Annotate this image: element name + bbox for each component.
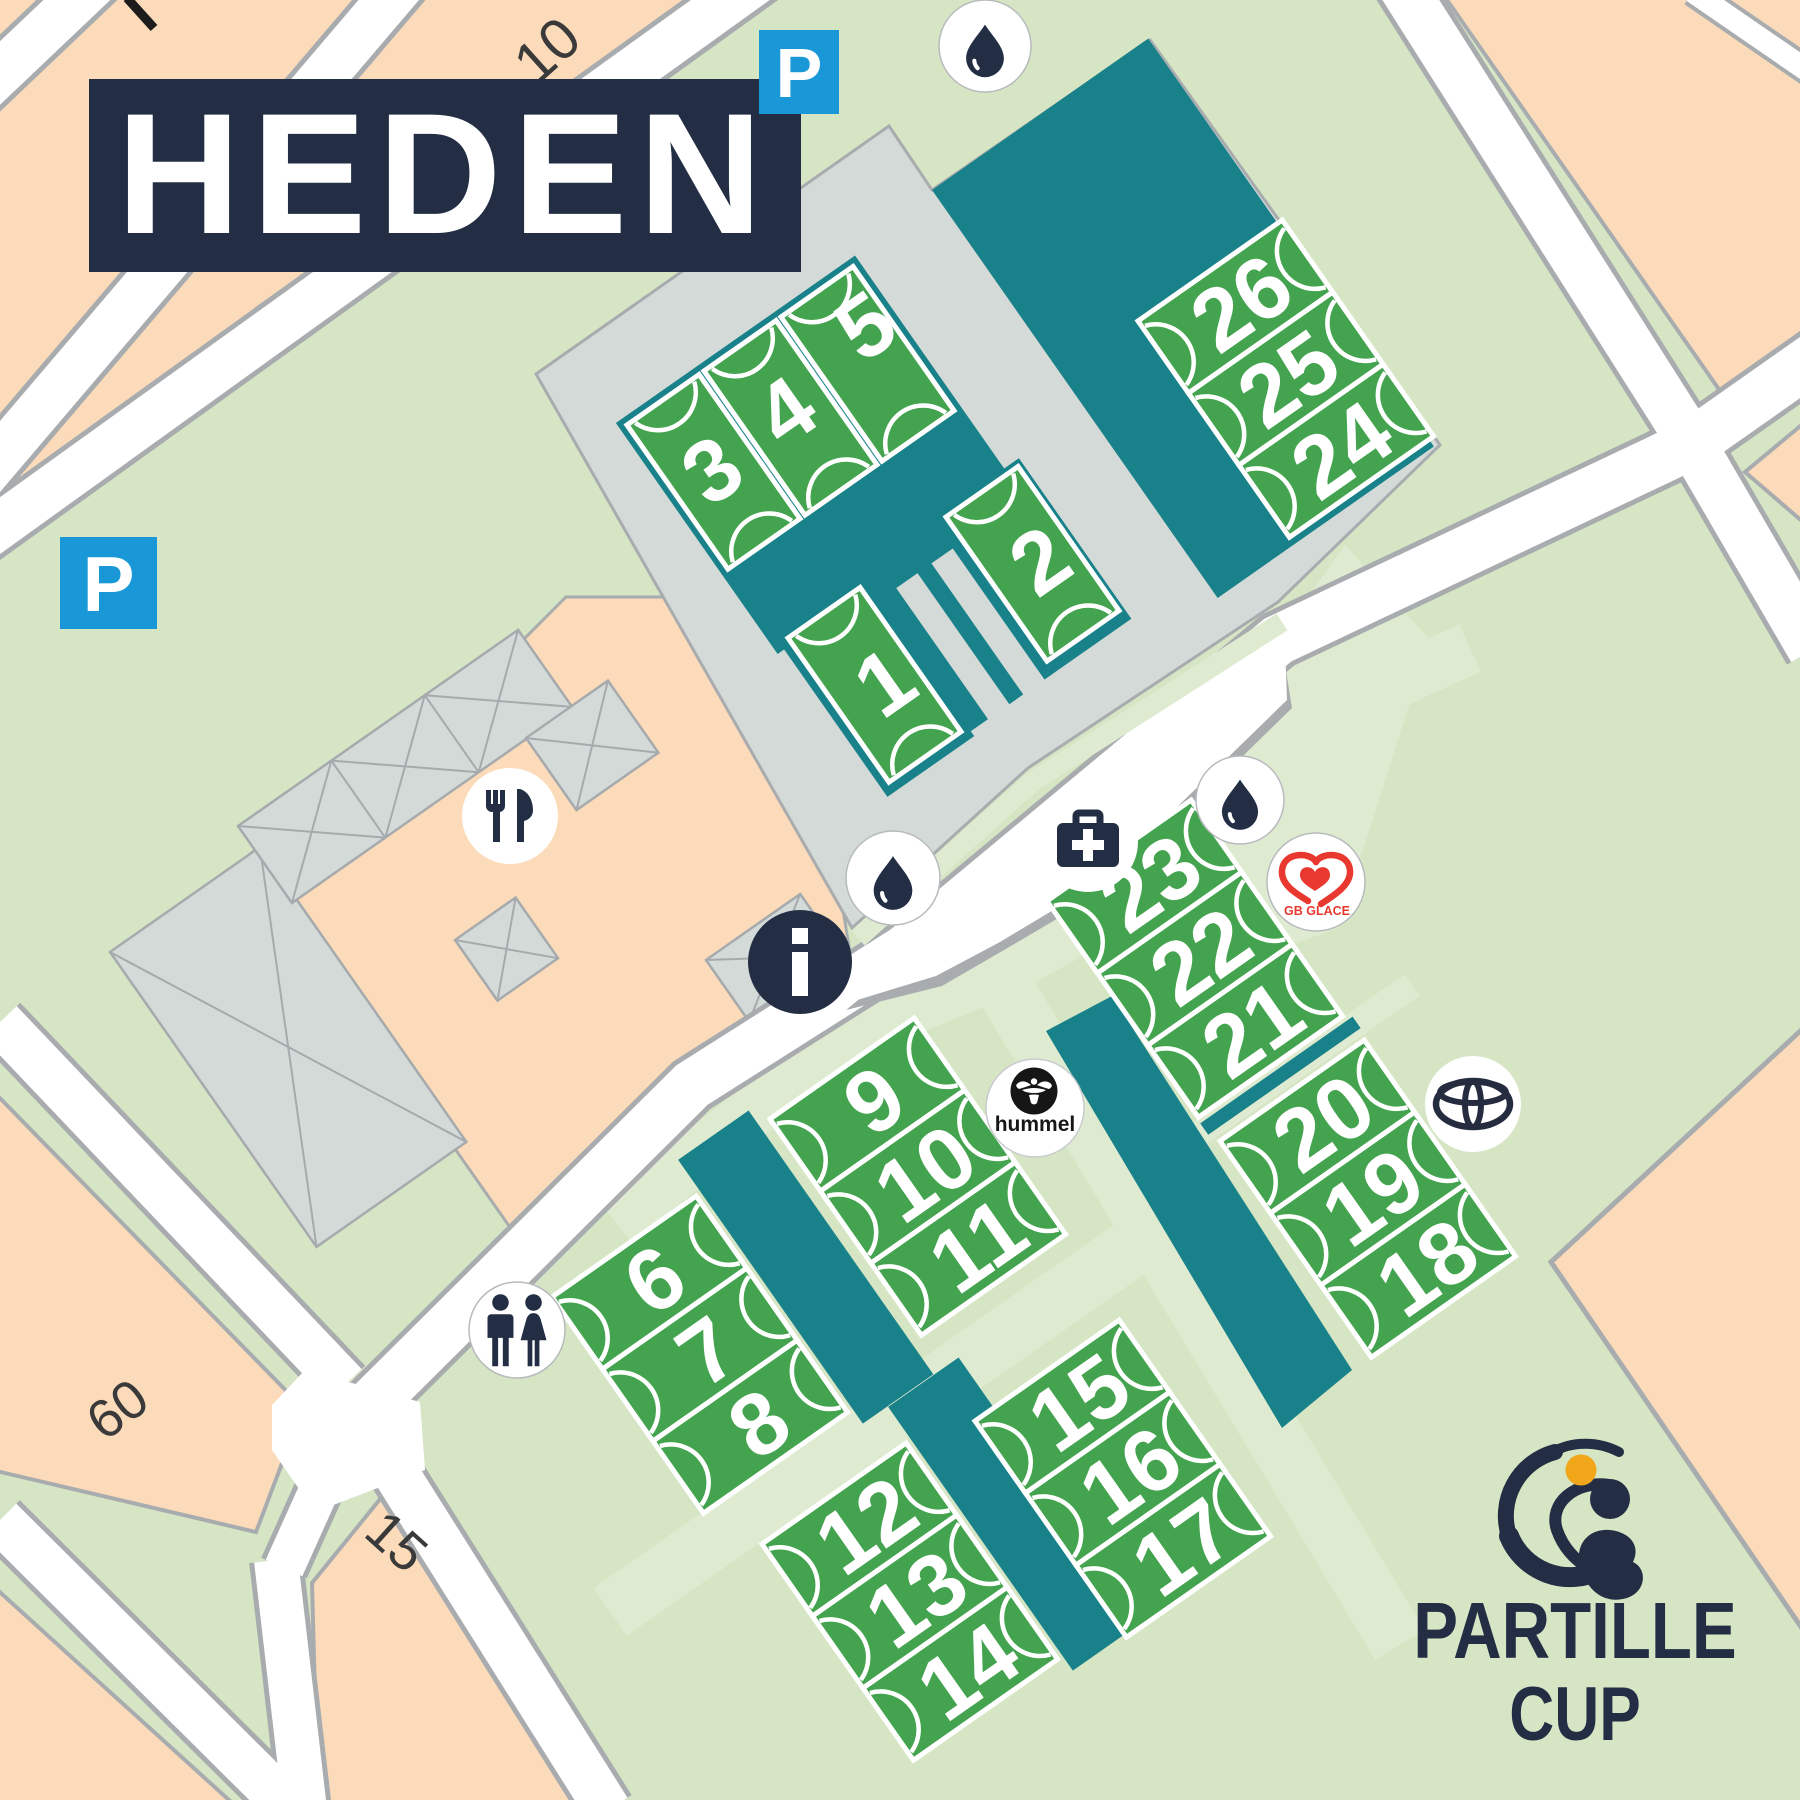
svg-text:CUP: CUP bbox=[1509, 1671, 1641, 1756]
svg-text:P: P bbox=[776, 34, 823, 112]
svg-text:P: P bbox=[82, 540, 134, 628]
svg-text:GB GLACE: GB GLACE bbox=[1284, 904, 1350, 918]
svg-text:HEDEN: HEDEN bbox=[116, 78, 773, 270]
svg-text:hummel: hummel bbox=[995, 1113, 1076, 1136]
svg-text:PARTILLE: PARTILLE bbox=[1413, 1585, 1736, 1675]
